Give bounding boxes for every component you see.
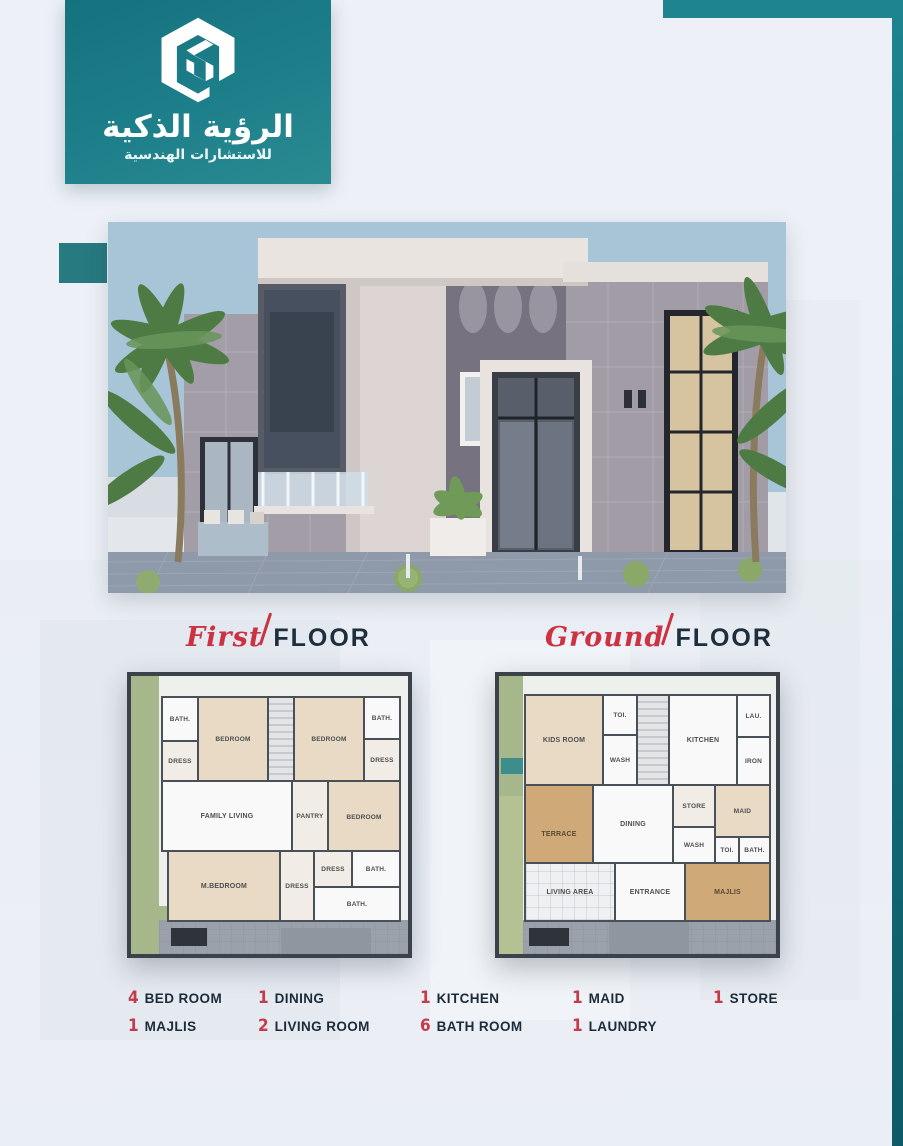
first-floor-word: FLOOR <box>273 624 371 653</box>
legend-count: 1 <box>713 988 724 1008</box>
legend-laundry: 1 LAUNDRY <box>572 1016 657 1036</box>
top-teal-bar <box>663 0 903 18</box>
brochure-page: الرؤية الذكية للاستشارات الهندسية <box>0 0 903 1146</box>
room-entrance: ENTRANCE <box>614 862 686 922</box>
plan-stair-landing <box>529 928 569 946</box>
legend-store: 1 STORE <box>713 988 778 1008</box>
plan-walkway <box>281 928 371 954</box>
plan-stair-landing <box>171 928 207 946</box>
legend-count: 1 <box>572 988 583 1008</box>
villa-illustration <box>108 222 786 593</box>
room-bath: BATH. <box>161 696 199 742</box>
room-bedroom: BEDROOM <box>327 780 401 854</box>
room-kitchen: KITCHEN <box>668 694 738 786</box>
legend-label: BATH ROOM <box>437 1019 523 1034</box>
legend-count: 1 <box>420 988 431 1008</box>
room-bath: BATH. <box>313 886 401 922</box>
hexagon-s-logo-icon <box>150 12 246 108</box>
legend-count: 4 <box>128 988 139 1008</box>
ground-floor-plan: KIDS ROOM TOI. WASH KITCHEN LAU. IRON TE… <box>495 672 780 958</box>
room-bath: BATH. <box>351 850 401 888</box>
legend-count: 1 <box>128 1016 139 1036</box>
legend-dining: 1 DINING <box>258 988 324 1008</box>
ground-floor-title: Ground FLOOR <box>545 612 773 653</box>
villa-render-photo <box>108 222 786 593</box>
first-floor-script-word: First <box>186 622 262 653</box>
first-floor-title: First FLOOR <box>186 612 371 653</box>
room-laundry: LAU. <box>736 694 771 738</box>
room-pantry: PANTRY <box>291 780 329 852</box>
room-staircase <box>636 694 670 786</box>
first-floor-plan: BATH. DRESS BEDROOM BEDROOM BATH. DRESS … <box>127 672 412 958</box>
legend-count: 1 <box>258 988 269 1008</box>
brand-title-arabic: الرؤية الذكية <box>102 110 294 144</box>
room-family-living: FAMILY LIVING <box>161 780 293 852</box>
room-dress: DRESS <box>161 740 199 782</box>
legend-bed-room: 4 BED ROOM <box>128 988 222 1008</box>
legend-count: 2 <box>258 1016 269 1036</box>
legend-kitchen: 1 KITCHEN <box>420 988 499 1008</box>
legend-count: 1 <box>572 1016 583 1036</box>
legend-label: MAJLIS <box>145 1019 197 1034</box>
room-master-bedroom: M.BEDROOM <box>167 850 281 922</box>
legend-living-room: 2 LIVING ROOM <box>258 1016 370 1036</box>
legend-bath-room: 6 BATH ROOM <box>420 1016 523 1036</box>
right-teal-strip <box>892 0 903 1146</box>
room-iron: IRON <box>736 736 771 786</box>
room-dress: DRESS <box>279 850 315 922</box>
room-staircase <box>267 696 295 782</box>
brand-subtitle-arabic: للاستشارات الهندسية <box>124 147 272 163</box>
room-maid: MAID <box>714 784 771 838</box>
legend-count: 6 <box>420 1016 431 1036</box>
ground-floor-word: FLOOR <box>675 624 773 653</box>
plan-garden-patch <box>499 796 523 954</box>
brand-panel: الرؤية الذكية للاستشارات الهندسية <box>65 0 331 184</box>
legend-label: MAID <box>589 991 625 1006</box>
room-living-area: LIVING AREA <box>524 862 616 922</box>
room-wash: WASH <box>602 734 638 786</box>
plan-pool <box>501 758 523 774</box>
legend-label: STORE <box>730 991 778 1006</box>
room-store: STORE <box>672 784 716 828</box>
room-dress: DRESS <box>313 850 353 888</box>
room-dress: DRESS <box>363 738 401 782</box>
room-kids-room: KIDS ROOM <box>524 694 604 786</box>
room-bedroom: BEDROOM <box>293 696 365 782</box>
room-majlis: MAJLIS <box>684 862 771 922</box>
legend-label: KITCHEN <box>437 991 500 1006</box>
legend-label: BED ROOM <box>145 991 222 1006</box>
teal-accent-square <box>59 243 107 283</box>
room-dining: DINING <box>592 784 674 864</box>
legend-maid: 1 MAID <box>572 988 625 1008</box>
legend-label: LIVING ROOM <box>275 1019 370 1034</box>
room-toilet: TOI. <box>602 694 638 736</box>
room-bedroom: BEDROOM <box>197 696 269 782</box>
room-bath: BATH. <box>738 836 771 864</box>
legend-majlis: 1 MAJLIS <box>128 1016 197 1036</box>
ground-floor-script-word: Ground <box>545 622 664 653</box>
room-wash: WASH <box>672 826 716 864</box>
legend-label: DINING <box>275 991 325 1006</box>
room-bath: BATH. <box>363 696 401 740</box>
legend-label: LAUNDRY <box>589 1019 657 1034</box>
room-toilet: TOI. <box>714 836 740 864</box>
plan-entry-walk <box>609 922 689 954</box>
